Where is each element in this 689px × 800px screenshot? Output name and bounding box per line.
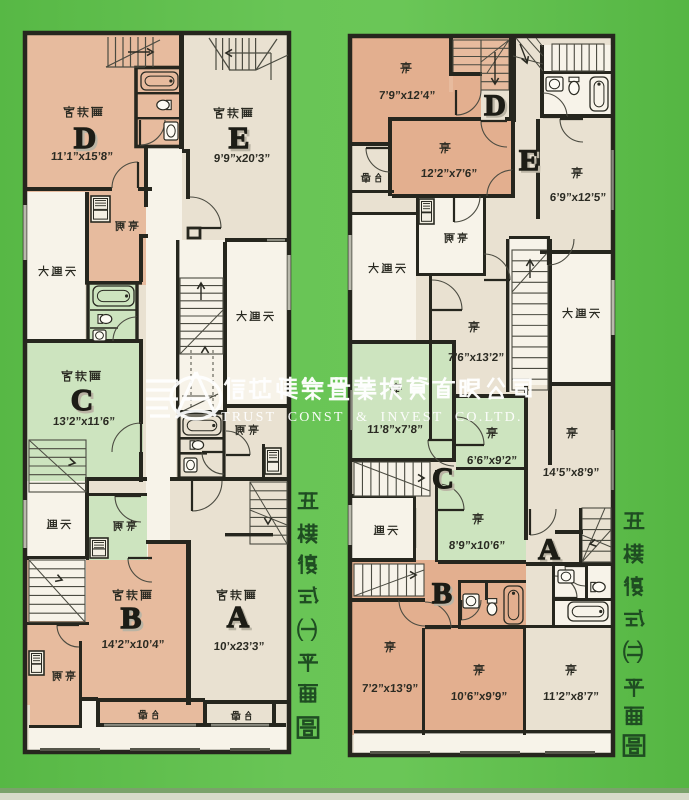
svg-text:B: B (432, 577, 452, 610)
svg-text:E: E (519, 144, 539, 177)
svg-text:D: D (484, 89, 506, 122)
svg-text:7’6”x13’2”: 7’6”x13’2” (447, 352, 504, 364)
svg-text:12’2”x7’6”: 12’2”x7’6” (420, 168, 477, 180)
svg-text:14’5”x8’9”: 14’5”x8’9” (542, 467, 599, 479)
svg-text:11’8”x7’8”: 11’8”x7’8” (367, 424, 423, 436)
svg-text:13’2”x11’6”: 13’2”x11’6” (53, 416, 116, 428)
svg-text:A: A (227, 599, 250, 634)
svg-text:B: B (121, 600, 142, 635)
svg-text:6’9”x12’5”: 6’9”x12’5” (549, 192, 606, 204)
svg-text:E: E (229, 120, 250, 155)
svg-text:10’6”x9’9”: 10’6”x9’9” (450, 691, 507, 703)
svg-text:TRUST CONST & INVEST CO.LT: TRUST CONST & INVEST CO.LTD. (221, 410, 523, 425)
svg-text:9’9”x20’3”: 9’9”x20’3” (213, 153, 270, 165)
svg-text:7’9”x12’4”: 7’9”x12’4” (378, 90, 435, 102)
svg-text:11’2”x8’7”: 11’2”x8’7” (543, 691, 599, 703)
svg-text:C: C (432, 462, 454, 495)
svg-text:C: C (71, 382, 93, 417)
svg-text:7’2”x13’9”: 7’2”x13’9” (361, 683, 418, 695)
svg-text:( ): ( ) (622, 637, 645, 664)
svg-text:8’9”x10’6”: 8’9”x10’6” (448, 540, 505, 552)
svg-text:11’1”x15’8”: 11’1”x15’8” (51, 151, 114, 163)
svg-text:14’2”x10’4”: 14’2”x10’4” (101, 639, 164, 651)
svg-text:10’x23’3”: 10’x23’3” (213, 641, 264, 653)
svg-text:A: A (538, 533, 560, 566)
svg-text:6’6”x9’2”: 6’6”x9’2” (467, 455, 518, 467)
svg-text:D: D (74, 120, 96, 155)
